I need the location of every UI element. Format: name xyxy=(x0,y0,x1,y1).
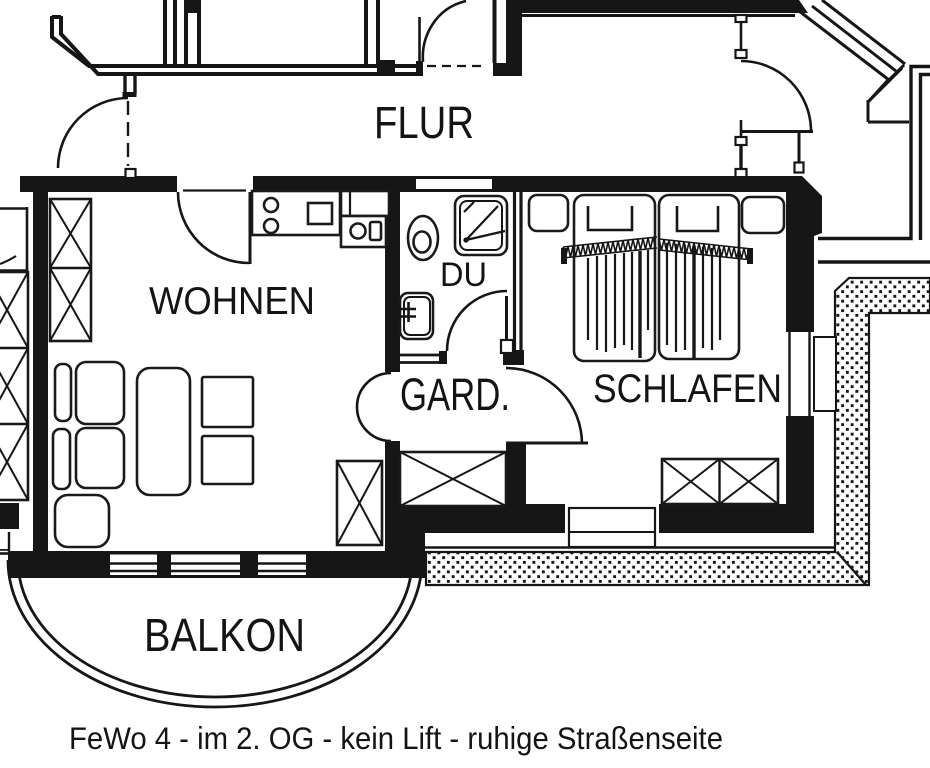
svg-text:DU: DU xyxy=(440,256,487,294)
svg-text:SCHLAFEN: SCHLAFEN xyxy=(593,367,782,411)
svg-text:FLUR: FLUR xyxy=(374,97,474,148)
svg-text:BALKON: BALKON xyxy=(144,609,305,661)
svg-text:FeWo 4 - im 2. OG - kein Lift: FeWo 4 - im 2. OG - kein Lift - ruhige S… xyxy=(69,720,723,756)
svg-text:GARD.: GARD. xyxy=(400,369,510,420)
svg-text:WOHNEN: WOHNEN xyxy=(149,280,315,323)
